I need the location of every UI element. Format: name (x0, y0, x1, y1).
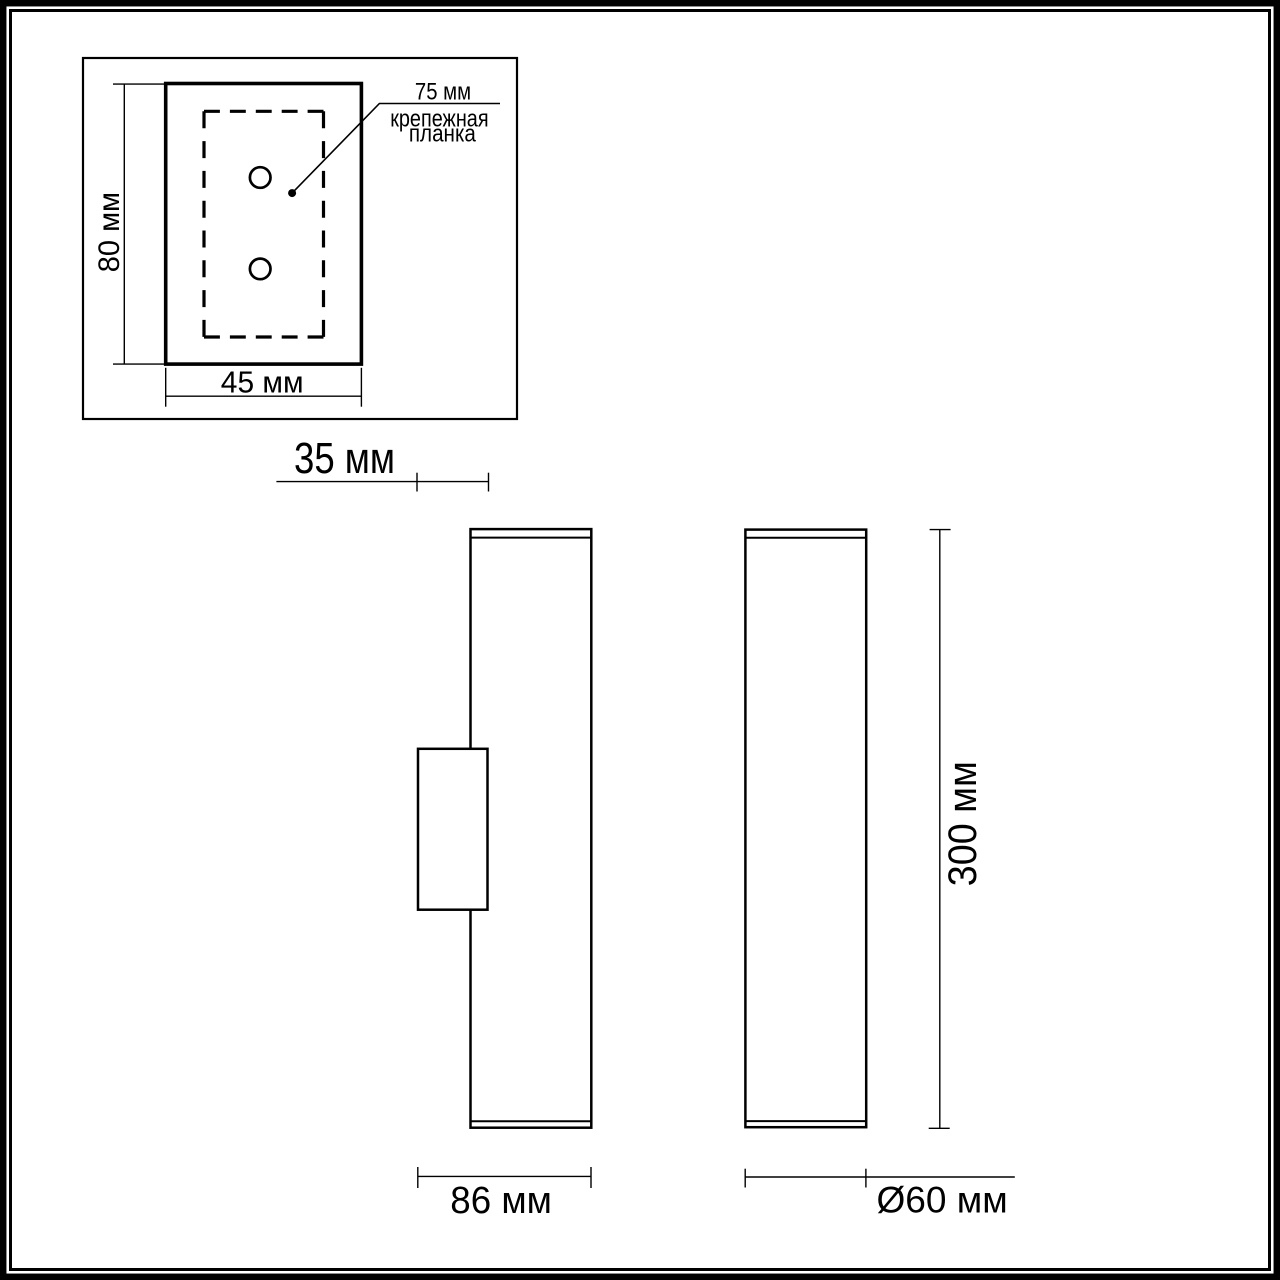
svg-text:75 мм: 75 мм (415, 78, 471, 105)
svg-text:35 мм: 35 мм (294, 434, 395, 483)
svg-text:300 мм: 300 мм (941, 761, 985, 886)
svg-text:планка: планка (409, 120, 476, 147)
svg-text:Ø60 мм: Ø60 мм (877, 1180, 1008, 1221)
svg-text:45 мм: 45 мм (221, 365, 304, 400)
svg-text:80 мм: 80 мм (93, 192, 126, 272)
svg-text:86 мм: 86 мм (450, 1180, 552, 1222)
